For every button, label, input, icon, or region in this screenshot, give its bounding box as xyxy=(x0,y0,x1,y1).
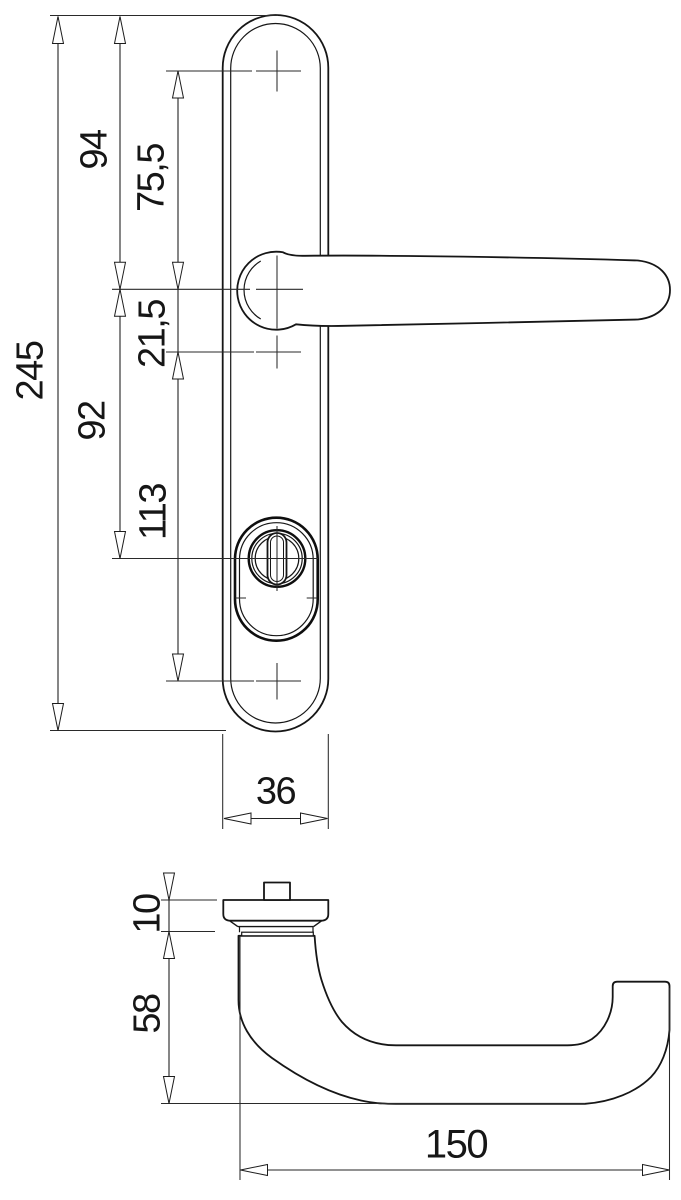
lever-handle-side-silhouette xyxy=(239,936,670,1104)
dim-arrow xyxy=(643,1165,670,1176)
dim-arrow xyxy=(53,704,64,731)
dim-label-handle-axis-to-second-hole: 21,5 xyxy=(132,300,174,368)
drawing-page: 245 94 75,5 21,5 92 113 36 xyxy=(0,0,681,1200)
dim-label-neck-projection: 58 xyxy=(127,994,169,1034)
dim-arrow xyxy=(173,654,184,681)
side-view: 10 58 150 xyxy=(127,873,670,1180)
dim-arrow xyxy=(241,1165,268,1176)
dim-label-top-hole-to-handle-axis: 75,5 xyxy=(131,144,173,212)
dim-arrow xyxy=(173,352,184,379)
technical-drawing: 245 94 75,5 21,5 92 113 36 xyxy=(0,0,681,1200)
dim-label-handle-length: 150 xyxy=(425,1122,487,1166)
dim-label-handle-axis-to-cylinder: 92 xyxy=(72,401,114,441)
dim-arrow xyxy=(224,813,251,824)
backplate-outline xyxy=(223,15,329,732)
rose-collar xyxy=(223,900,328,921)
dim-label-second-to-bottom-hole: 113 xyxy=(133,484,175,540)
dim-arrow xyxy=(301,813,328,824)
dim-arrow xyxy=(53,17,64,44)
dim-arrow xyxy=(115,289,126,316)
dim-label-plate-width: 36 xyxy=(256,771,296,813)
spindle-stub xyxy=(264,883,290,901)
dim-arrow xyxy=(173,262,184,289)
dim-label-rose-height: 10 xyxy=(127,894,169,934)
dim-arrow xyxy=(115,17,126,44)
dim-arrow xyxy=(164,932,175,959)
rose-flange-sides xyxy=(240,927,314,933)
dim-arrow xyxy=(164,1077,175,1104)
dim-arrow xyxy=(173,71,184,98)
dim-arrow xyxy=(115,532,126,559)
dim-label-top-to-handle-axis: 94 xyxy=(74,129,116,170)
lever-handle-front xyxy=(237,252,670,330)
front-view: 245 94 75,5 21,5 92 113 36 xyxy=(10,15,670,829)
rose-flange-lip xyxy=(242,932,314,936)
dim-arrow xyxy=(115,262,126,289)
dim-label-overall-height: 245 xyxy=(10,341,52,400)
